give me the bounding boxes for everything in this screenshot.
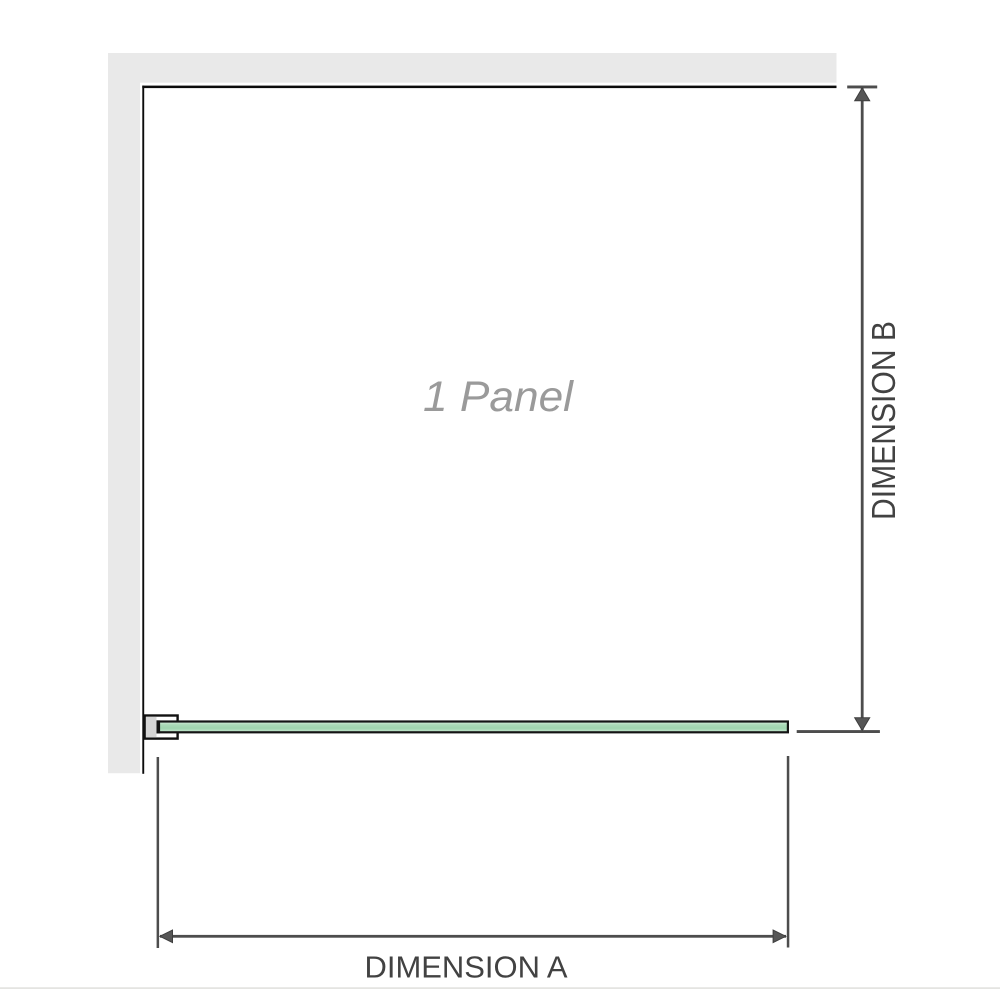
- svg-text:1 Panel: 1 Panel: [423, 373, 574, 421]
- svg-text:DIMENSION B: DIMENSION B: [865, 321, 902, 520]
- svg-text:DIMENSION A: DIMENSION A: [365, 950, 568, 985]
